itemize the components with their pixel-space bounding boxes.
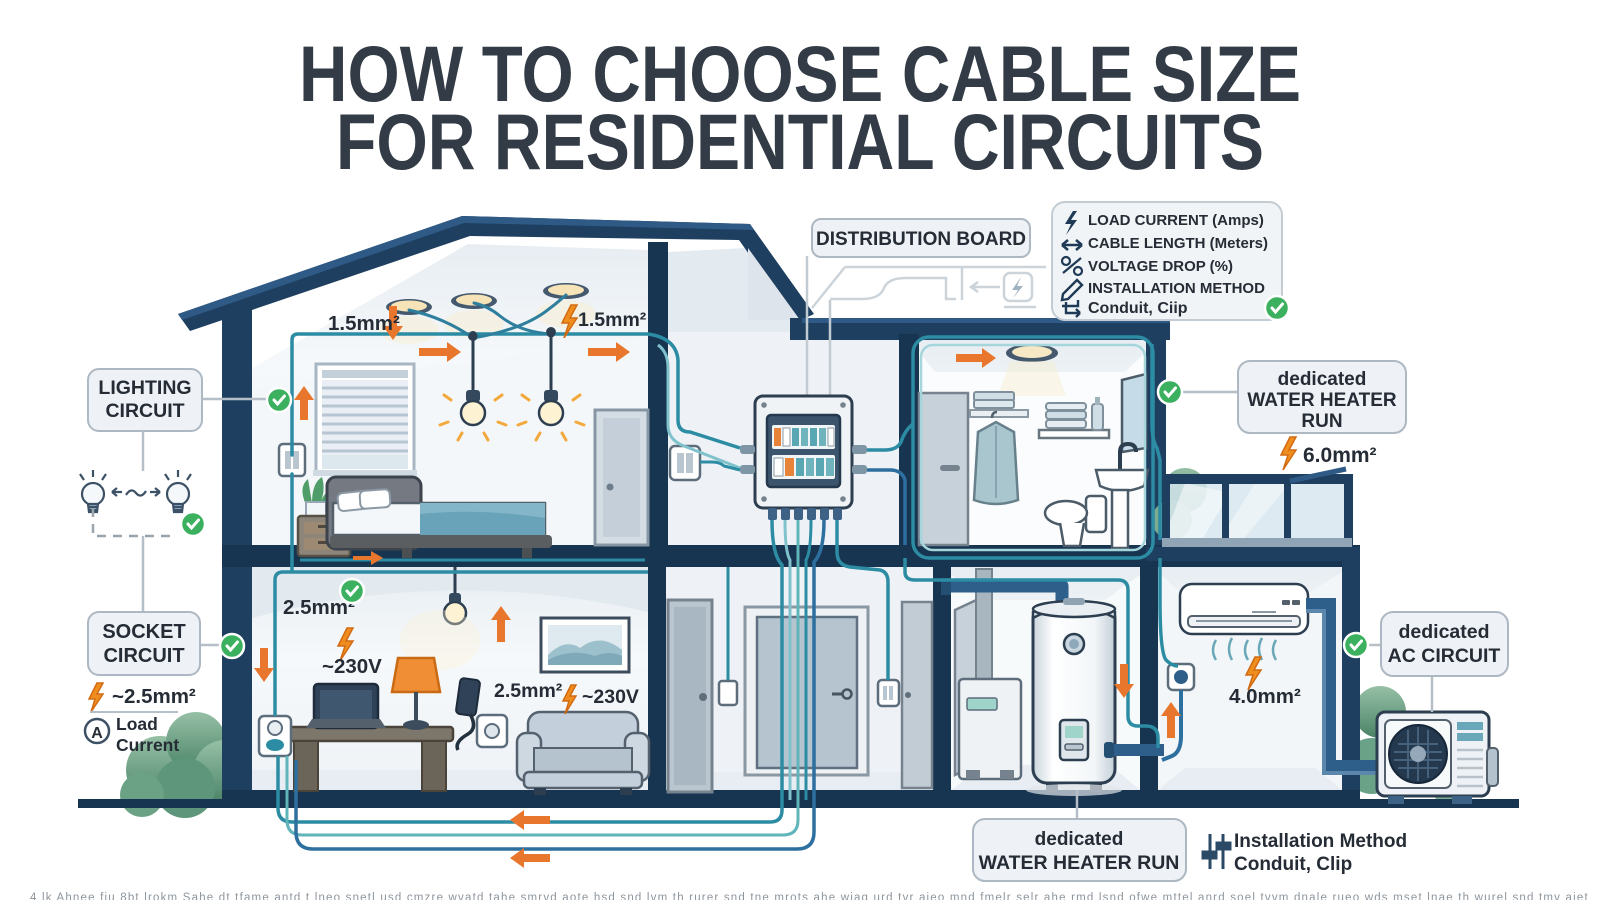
svg-text:~230V: ~230V xyxy=(582,686,639,708)
svg-text:~2.5mm²: ~2.5mm² xyxy=(112,685,196,708)
svg-text:A: A xyxy=(91,725,103,742)
svg-text:CIRCUIT: CIRCUIT xyxy=(105,400,184,422)
svg-text:dedicated: dedicated xyxy=(1035,829,1124,850)
svg-text:Load: Load xyxy=(116,714,158,734)
svg-text:LOAD CURRENT (Amps): LOAD CURRENT (Amps) xyxy=(1088,212,1264,229)
svg-text:~230V: ~230V xyxy=(322,655,382,678)
svg-text:2.5mm²: 2.5mm² xyxy=(494,680,563,702)
svg-text:Conduit, Clip: Conduit, Clip xyxy=(1234,854,1352,875)
svg-text:dedicated: dedicated xyxy=(1398,621,1489,643)
svg-text:RUN: RUN xyxy=(1301,411,1342,432)
svg-text:Installation Method: Installation Method xyxy=(1234,831,1407,852)
svg-text:WATER HEATER: WATER HEATER xyxy=(1247,390,1396,411)
svg-text:VOLTAGE DROP (%): VOLTAGE DROP (%) xyxy=(1088,258,1233,275)
svg-text:1.5mm²: 1.5mm² xyxy=(578,309,647,331)
svg-text:1.5mm²: 1.5mm² xyxy=(328,312,400,335)
svg-text:CIRCUIT: CIRCUIT xyxy=(103,645,184,667)
svg-text:WATER HEATER RUN: WATER HEATER RUN xyxy=(979,852,1180,874)
svg-text:CABLE LENGTH (Meters): CABLE LENGTH (Meters) xyxy=(1088,235,1268,252)
svg-text:6.0mm²: 6.0mm² xyxy=(1303,444,1377,467)
svg-text:Conduit, Ciip: Conduit, Ciip xyxy=(1088,300,1188,317)
svg-text:LIGHTING: LIGHTING xyxy=(98,377,191,399)
svg-text:INSTALLATION METHOD: INSTALLATION METHOD xyxy=(1088,280,1265,297)
svg-text:4 lk Ahnee fiu 8bt lrokm Sahe: 4 lk Ahnee fiu 8bt lrokm Sahe dt tfame a… xyxy=(30,892,1589,900)
svg-text:FOR RESIDENTIAL CIRCUITS: FOR RESIDENTIAL CIRCUITS xyxy=(336,97,1264,186)
svg-text:SOCKET: SOCKET xyxy=(102,621,185,643)
svg-text:dedicated: dedicated xyxy=(1278,369,1367,390)
svg-text:AC CIRCUIT: AC CIRCUIT xyxy=(1388,645,1501,667)
svg-text:4.0mm²: 4.0mm² xyxy=(1229,685,1301,708)
svg-text:DISTRIBUTION BOARD: DISTRIBUTION BOARD xyxy=(816,229,1026,250)
svg-text:Current: Current xyxy=(116,735,179,755)
